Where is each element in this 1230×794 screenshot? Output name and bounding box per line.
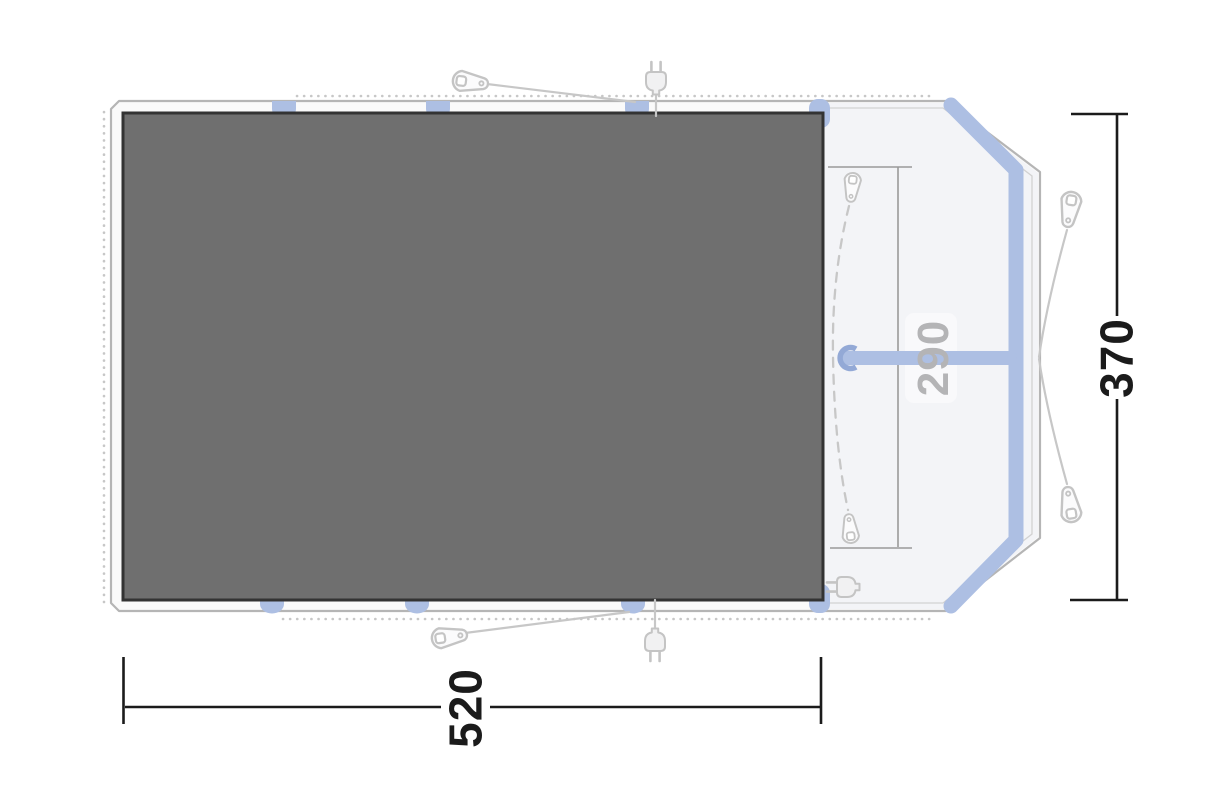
guy-line <box>1039 359 1067 484</box>
floorplan-drawing: 290 520 370 <box>0 0 1230 794</box>
guy-line <box>487 84 635 102</box>
dimension-290-label: 290 <box>909 320 958 396</box>
groundsheet <box>123 113 823 600</box>
guy-line <box>1039 230 1067 357</box>
floorplan-canvas: 290 520 370 <box>0 0 1230 794</box>
dimension-520-label: 520 <box>440 668 492 748</box>
power-plug-icon <box>645 629 665 662</box>
guy-line <box>465 612 629 633</box>
tent-peg-icon <box>452 70 489 94</box>
tent-peg-icon <box>1057 486 1082 524</box>
power-plug-icon <box>646 62 666 95</box>
tent-peg-icon <box>1057 190 1082 228</box>
dimension-370-label: 370 <box>1091 318 1143 398</box>
tent-peg-icon <box>431 625 469 650</box>
